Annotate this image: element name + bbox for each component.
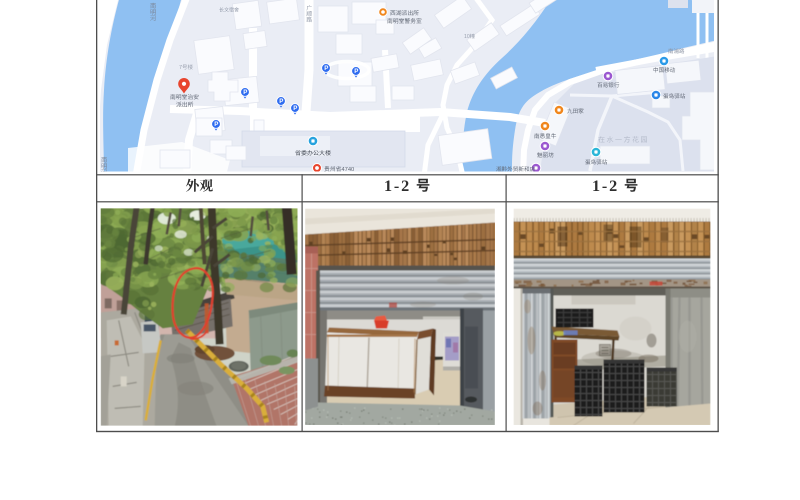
svg-text:4740: 4740 xyxy=(341,167,354,173)
svg-text:7: 7 xyxy=(179,65,182,71)
svg-text:P: P xyxy=(354,68,358,75)
svg-text:P: P xyxy=(293,105,297,112)
svg-text:1-2: 1-2 xyxy=(384,177,411,195)
svg-text:P: P xyxy=(243,89,247,96)
svg-text:1-2: 1-2 xyxy=(592,177,619,195)
svg-text:P: P xyxy=(324,65,328,72)
svg-text:P: P xyxy=(214,121,218,128)
svg-text:10: 10 xyxy=(464,34,470,40)
svg-text:P: P xyxy=(279,98,283,105)
